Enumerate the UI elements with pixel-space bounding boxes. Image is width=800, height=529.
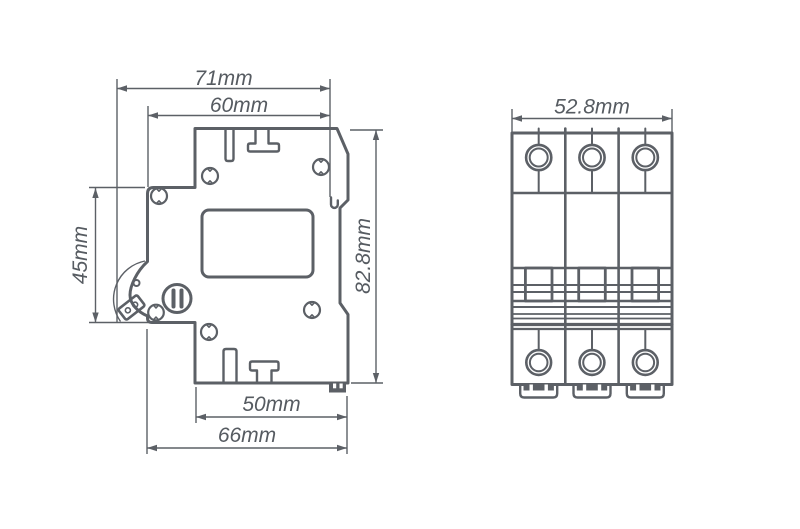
din-clip-bottom <box>329 384 346 393</box>
breaker-pole-1 <box>520 129 557 398</box>
bottom-vent-slot-and-tab <box>224 349 279 383</box>
front-view: 52.8mm <box>512 96 672 398</box>
dim-label-45mm: 45mm <box>69 226 92 284</box>
rating-label-plate <box>202 210 313 277</box>
dim-label-60mm: 60mm <box>210 94 268 117</box>
dim-label-50mm: 50mm <box>242 393 300 416</box>
dimension-base-depth-inner: 50mm <box>196 387 347 423</box>
dimension-overall-height: 82.8mm <box>350 130 383 383</box>
mcb-dimension-drawing: 71mm 60mm 45mm 82.8mm 50mm <box>0 0 800 529</box>
dim-label-52-8mm: 52.8mm <box>554 96 630 119</box>
lever-pivot-dot <box>134 280 140 286</box>
dimension-front-face-height: 45mm <box>69 188 150 323</box>
dimension-upper-depth: 60mm <box>148 94 330 187</box>
din-claw-groove <box>331 198 338 208</box>
side-view: 71mm 60mm 45mm 82.8mm 50mm <box>69 67 383 454</box>
breaker-pole-3 <box>627 129 664 398</box>
dim-label-66mm: 66mm <box>218 424 276 447</box>
top-vent-slot-and-tab <box>226 129 280 162</box>
dim-label-71mm: 71mm <box>194 67 252 90</box>
front-face-lines <box>512 193 672 329</box>
breaker-pole-2 <box>574 129 611 398</box>
side-body-outline <box>130 129 348 384</box>
dimension-overall-width: 52.8mm <box>512 96 672 134</box>
toggle-lever <box>118 295 145 320</box>
technical-drawing-canvas: 71mm 60mm 45mm 82.8mm 50mm <box>0 0 800 529</box>
terminal-screw-side <box>163 285 191 313</box>
dim-label-82-8mm: 82.8mm <box>352 218 375 294</box>
dimension-base-depth-overall: 66mm <box>147 329 347 454</box>
